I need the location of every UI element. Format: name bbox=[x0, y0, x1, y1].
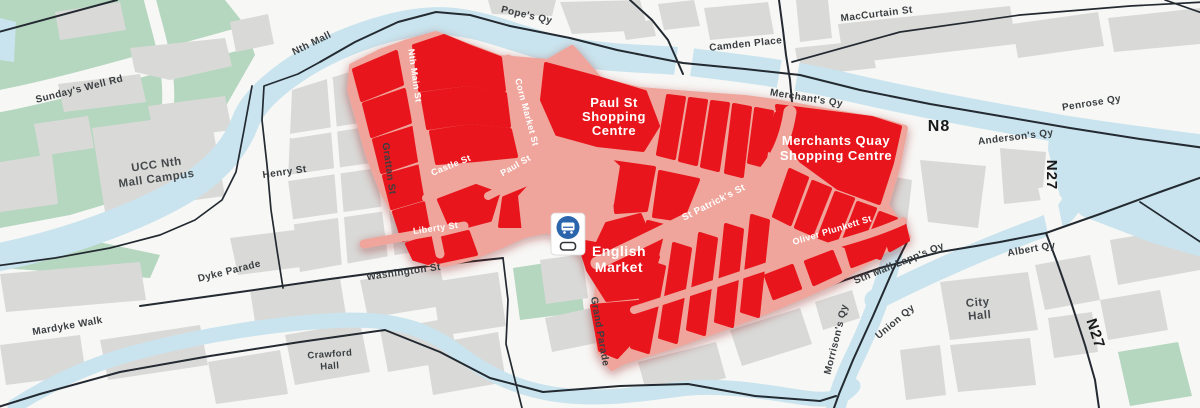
city-map: Sunday's Well Rd Nth Mall Pope's Qy Camd… bbox=[0, 0, 1200, 408]
zone-label-paul-sc-line1: Paul St bbox=[590, 95, 638, 110]
zone-label-english-market-line2: Market bbox=[595, 259, 643, 275]
zone-label-merchants-sc-line2: Shopping Centre bbox=[780, 148, 892, 163]
place-label-crawford-line2: Hall bbox=[320, 360, 340, 372]
place-label-city-hall-line1: City bbox=[965, 296, 990, 310]
zone-label-paul-sc-line2: Shopping bbox=[582, 109, 646, 124]
route-marker-n8: N8 bbox=[928, 118, 950, 135]
zone-label-paul-sc-line3: Centre bbox=[592, 123, 636, 138]
route-marker-n27-east: N27 bbox=[1043, 160, 1060, 191]
place-label-city-hall-line2: Hall bbox=[968, 309, 992, 323]
zone-label-merchants-sc-line1: Merchants Quay bbox=[782, 133, 890, 148]
map-canvas: Sunday's Well Rd Nth Mall Pope's Qy Camd… bbox=[0, 0, 1200, 408]
bus-lane-sign-icon bbox=[551, 213, 585, 255]
zone-label-english-market-line1: English bbox=[592, 243, 646, 259]
